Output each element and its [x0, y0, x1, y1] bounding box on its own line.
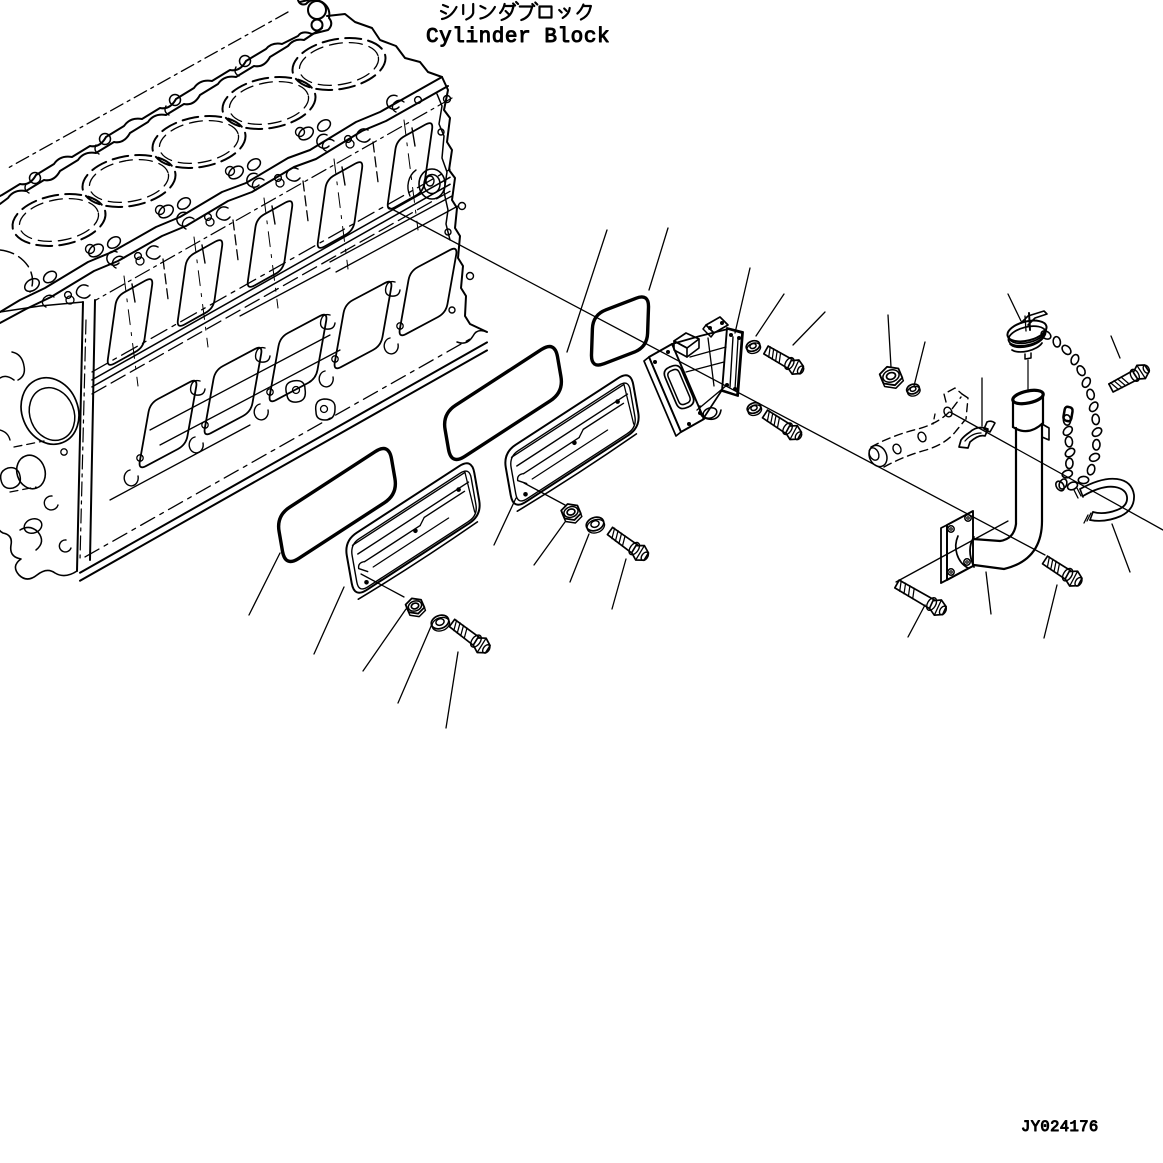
- svg-text:JY024176: JY024176: [1021, 1118, 1099, 1136]
- svg-text:Cylinder Block: Cylinder Block: [426, 26, 610, 49]
